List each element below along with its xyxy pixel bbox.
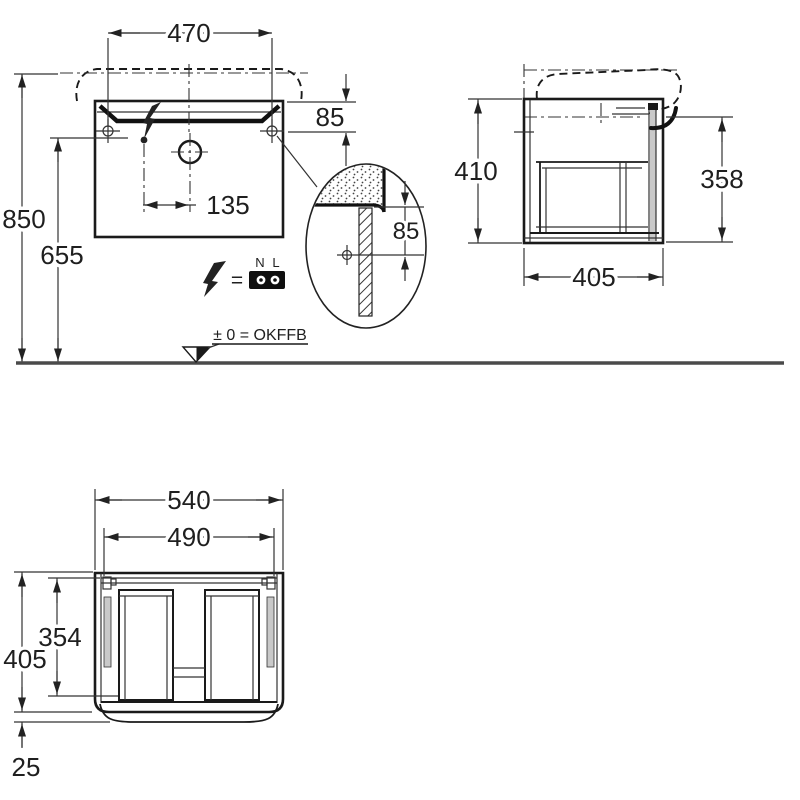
plan-inner-width-dimension: 490 <box>104 522 274 576</box>
side-inner-height-label: 358 <box>700 164 743 194</box>
drawer-section-side <box>524 162 663 238</box>
side-depth-dimension: 405 <box>524 248 663 292</box>
technical-drawing-page: 470 85 850 655 <box>0 0 800 800</box>
panel-section <box>359 208 372 316</box>
lightning-bolt-icon <box>203 261 226 297</box>
plan-view: 540 490 354 405 <box>3 485 283 782</box>
side-depth-label: 405 <box>572 262 615 292</box>
floor-to-rim-label: 850 <box>2 204 45 234</box>
front-top-to-fixing-dimension: 85 <box>287 74 356 166</box>
side-height-dimension: 410 <box>454 99 522 243</box>
door-panel-section <box>648 103 658 241</box>
detail-view: 85 <box>304 160 426 328</box>
side-inner-height-dimension: 358 <box>666 117 744 242</box>
terminal-block-icon <box>249 271 285 289</box>
door-offset-dimension: 25 <box>12 722 110 782</box>
level-label: ± 0 = OKFFB <box>213 327 307 344</box>
drain-hole-marker <box>171 133 209 212</box>
drawer-box-right <box>205 590 259 700</box>
outlet-offset-label: 135 <box>206 190 249 220</box>
drawer-runner-right <box>267 597 274 667</box>
center-cross-rail <box>173 668 205 677</box>
hinge-clip <box>648 103 658 110</box>
door-offset-label: 25 <box>12 752 41 782</box>
floor-to-rim-dimension: 850 <box>2 74 45 362</box>
hinge-clip-left <box>111 579 116 585</box>
front-fixing-width-label: 470 <box>167 18 210 48</box>
level-marker: ± 0 = OKFFB <box>183 327 308 362</box>
plan-width-label: 540 <box>167 485 210 515</box>
outlet-offset-dimension: 135 <box>143 190 250 220</box>
terminal-l-label: L <box>272 255 279 270</box>
hinge-clip-right <box>262 579 267 585</box>
drawer-runner-left <box>104 597 111 667</box>
drawing-canvas: 470 85 850 655 <box>0 0 800 800</box>
front-view: 470 85 850 655 <box>2 18 356 362</box>
cabinet-body-plan <box>95 573 283 712</box>
terminal-n-label: N <box>255 255 264 270</box>
detail-dim-label: 85 <box>393 218 420 245</box>
basin-outline-side <box>537 69 681 110</box>
drawer-box-left <box>119 590 173 700</box>
side-view: 410 358 405 <box>454 64 743 292</box>
electrical-legend: = N L <box>203 255 285 297</box>
side-height-label: 410 <box>454 156 497 186</box>
equals-sign: = <box>231 269 243 292</box>
front-top-to-fixing-label: 85 <box>316 102 345 132</box>
floor-to-fixing-label: 655 <box>40 240 83 270</box>
plan-inner-width-label: 490 <box>167 522 210 552</box>
floor-to-fixing-dimension: 655 <box>40 138 128 362</box>
plan-depth-label: 405 <box>3 644 46 674</box>
cabinet-body-side <box>524 99 663 243</box>
